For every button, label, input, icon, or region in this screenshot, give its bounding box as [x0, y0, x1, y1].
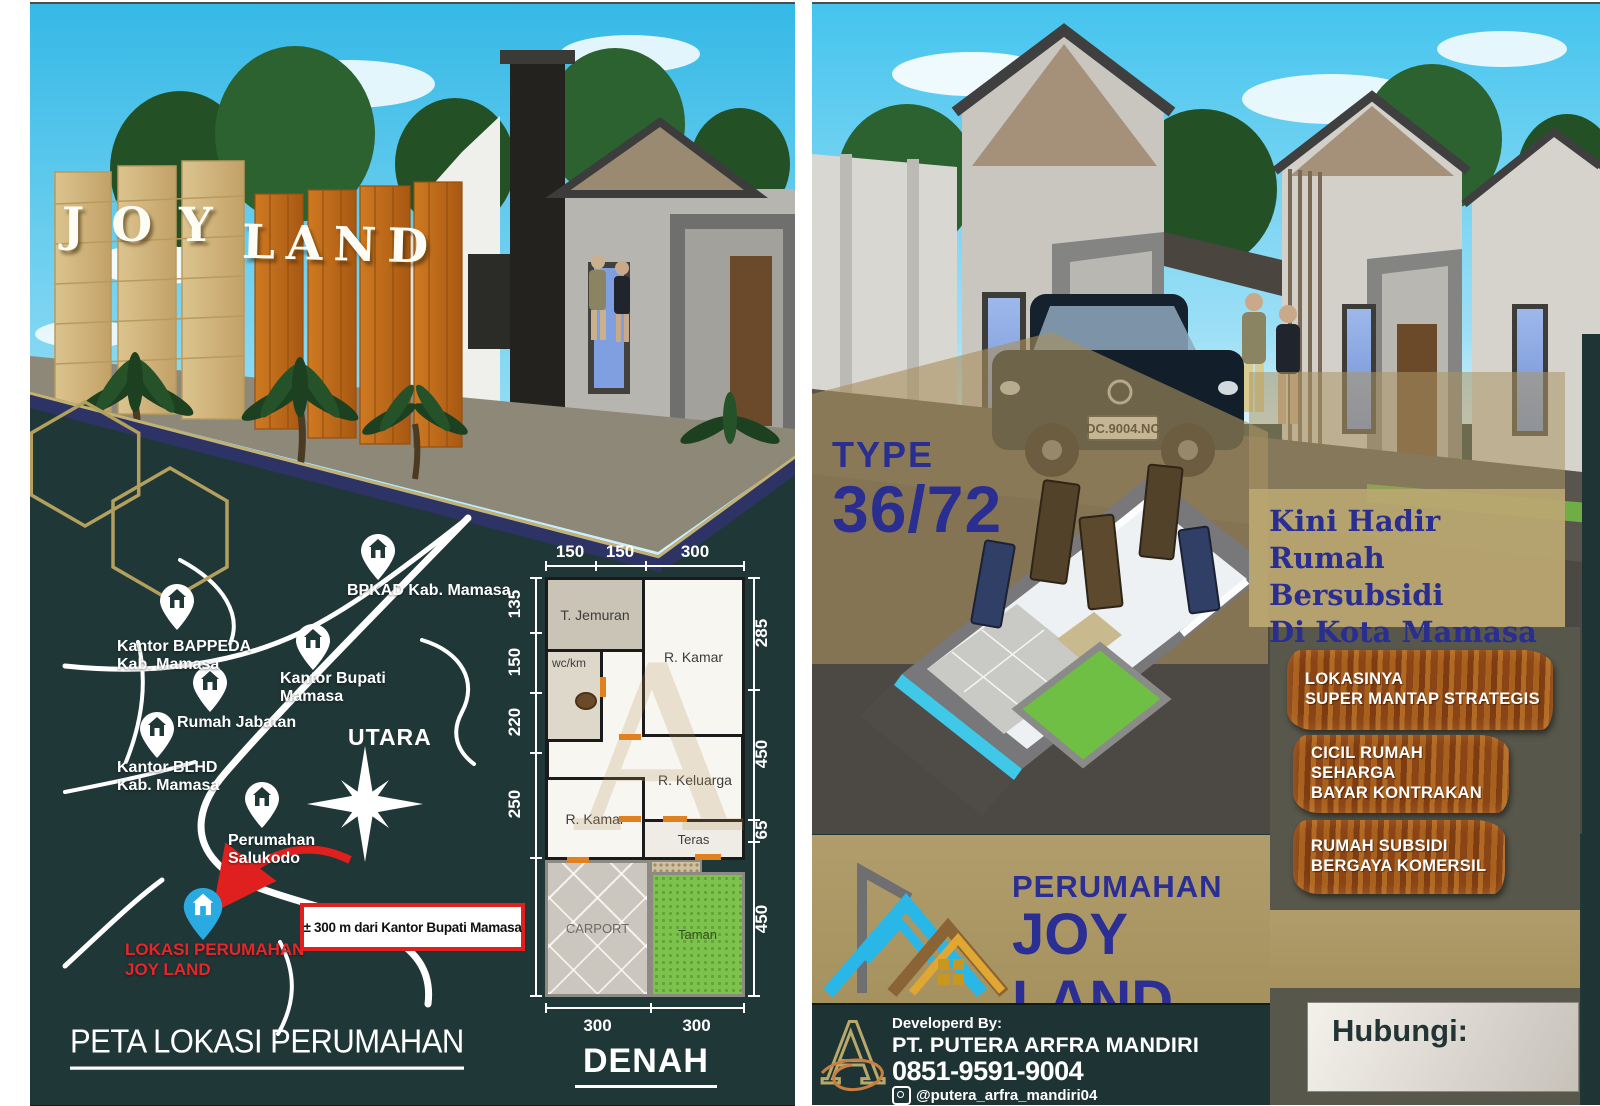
- dim-top-1: 150: [545, 542, 595, 562]
- map-title: PETA LOKASI PERUMAHAN: [70, 1022, 464, 1070]
- door-marker: [619, 816, 641, 822]
- feature-sign-2: CICIL RUMAH SEHARGA BAYAR KONTRAKAN: [1293, 735, 1509, 813]
- compass-label: UTARA: [348, 724, 432, 751]
- dim-line-left: [535, 577, 537, 997]
- dim-right-1: 285: [752, 603, 772, 663]
- tan-overlay-column: [1249, 372, 1565, 490]
- instagram-handle: @putera_arfra_mandiri04: [916, 1087, 1097, 1104]
- door-marker: [695, 854, 721, 860]
- floorplan-watermark: A: [575, 637, 735, 867]
- dim-right-2: 450: [752, 724, 772, 784]
- instagram-icon: [892, 1086, 911, 1105]
- pin-salukodo: [245, 782, 279, 828]
- distance-note-box: ± 300 m dari Kantor Bupati Mamasa: [300, 903, 525, 951]
- floorplan-title: DENAH: [575, 1042, 717, 1088]
- door-marker: [567, 857, 589, 863]
- right-panel: DC.9004.NC: [812, 2, 1600, 1105]
- distance-note: ± 300 m dari Kantor Bupati Mamasa: [303, 920, 521, 935]
- label-bappeda: Kantor BAPPEDA Kab. Mamasa: [117, 638, 251, 675]
- contact-box: Hubungi:: [1307, 1002, 1579, 1092]
- label-bupati: Kantor Bupati Mamasa: [280, 670, 386, 707]
- label-bpkad: BPKAD Kab. Mamasa: [347, 582, 511, 600]
- dim-right-4: 450: [752, 889, 772, 949]
- sign-word-land: LAND: [241, 215, 492, 277]
- dim-top-3: 300: [645, 542, 745, 562]
- developer-by: Developerd By:: [892, 1015, 1002, 1032]
- type-value: 36/72: [832, 476, 1002, 542]
- developer-logo: A: [818, 1009, 888, 1105]
- dim-right-3: 65: [752, 800, 772, 860]
- dim-left-4: 250: [505, 774, 525, 834]
- right-edge-strip: [1582, 334, 1600, 1105]
- pin-bpkad: [361, 534, 395, 580]
- left-panel: JOY LAND: [30, 2, 795, 1106]
- door-marker: [663, 816, 687, 822]
- brand-perumahan: PERUMAHAN: [1012, 869, 1223, 905]
- sign-word-joy: JOY: [62, 198, 272, 253]
- hexagon-ornaments: [30, 382, 265, 627]
- feature-sign-1-text: LOKASINYA SUPER MANTAP STRATEGIS: [1287, 670, 1540, 710]
- feature-sign-3: RUMAH SUBSIDI BERGAYA KOMERSIL: [1293, 820, 1505, 894]
- headline-box: Kini Hadir Rumah Bersubsidi Di Kota Mama…: [1249, 489, 1565, 627]
- contact-label: Hubungi:: [1332, 1013, 1468, 1048]
- brand-band-extension: [1270, 910, 1580, 988]
- label-blhd: Kantor BLHD Kab. Mamasa: [117, 759, 219, 796]
- pin-blhd: [140, 712, 174, 758]
- compass-star: [307, 746, 423, 862]
- dim-bottom-2: 300: [650, 1016, 743, 1036]
- door-marker: [619, 734, 641, 740]
- developer-name: PT. PUTERA ARFRA MANDIRI: [892, 1033, 1199, 1058]
- door-marker: [600, 677, 606, 697]
- developer-instagram: @putera_arfra_mandiri04: [892, 1086, 1097, 1105]
- dim-left-1: 135: [505, 574, 525, 634]
- feature-sign-2-text: CICIL RUMAH SEHARGA BAYAR KONTRAKAN: [1293, 744, 1482, 803]
- pin-joyland-site: [183, 888, 223, 940]
- joyland-logo: [820, 841, 1015, 999]
- floorplan: A T. Jemuran R. Kamar wc/km R. Keluarga …: [545, 577, 745, 997]
- label-salukodo: Perumahan Salukodo: [228, 832, 315, 869]
- feature-sign-3-text: RUMAH SUBSIDI BERGAYA KOMERSIL: [1293, 837, 1486, 877]
- label-rumah-jabatan: Rumah Jabatan: [177, 714, 296, 732]
- dim-line-bottom: [545, 1007, 745, 1009]
- label-joyland-site: LOKASI PERUMAHAN JOY LAND: [125, 940, 304, 979]
- pin-bupati: [296, 624, 330, 670]
- developer-footer: A Developerd By: PT. PUTERA ARFRA MANDIR…: [812, 1003, 1270, 1105]
- dim-top-2: 150: [595, 542, 645, 562]
- headline-text: Kini Hadir Rumah Bersubsidi Di Kota Mama…: [1269, 503, 1565, 651]
- dim-bottom-1: 300: [545, 1016, 650, 1036]
- brand-band: PERUMAHAN JOY LAND: [812, 835, 1270, 1003]
- brochure-page: JOY LAND: [0, 0, 1600, 1106]
- type-block: TYPE 36/72: [832, 434, 1002, 542]
- pin-bappeda: [160, 584, 194, 630]
- dim-left-2: 150: [505, 632, 525, 692]
- type-label: TYPE: [832, 434, 1002, 476]
- feature-sign-1: LOKASINYA SUPER MANTAP STRATEGIS: [1287, 650, 1553, 730]
- developer-phone: 0851-9591-9004: [892, 1056, 1083, 1087]
- dim-left-3: 220: [505, 692, 525, 752]
- room-taman: Taman: [650, 872, 745, 997]
